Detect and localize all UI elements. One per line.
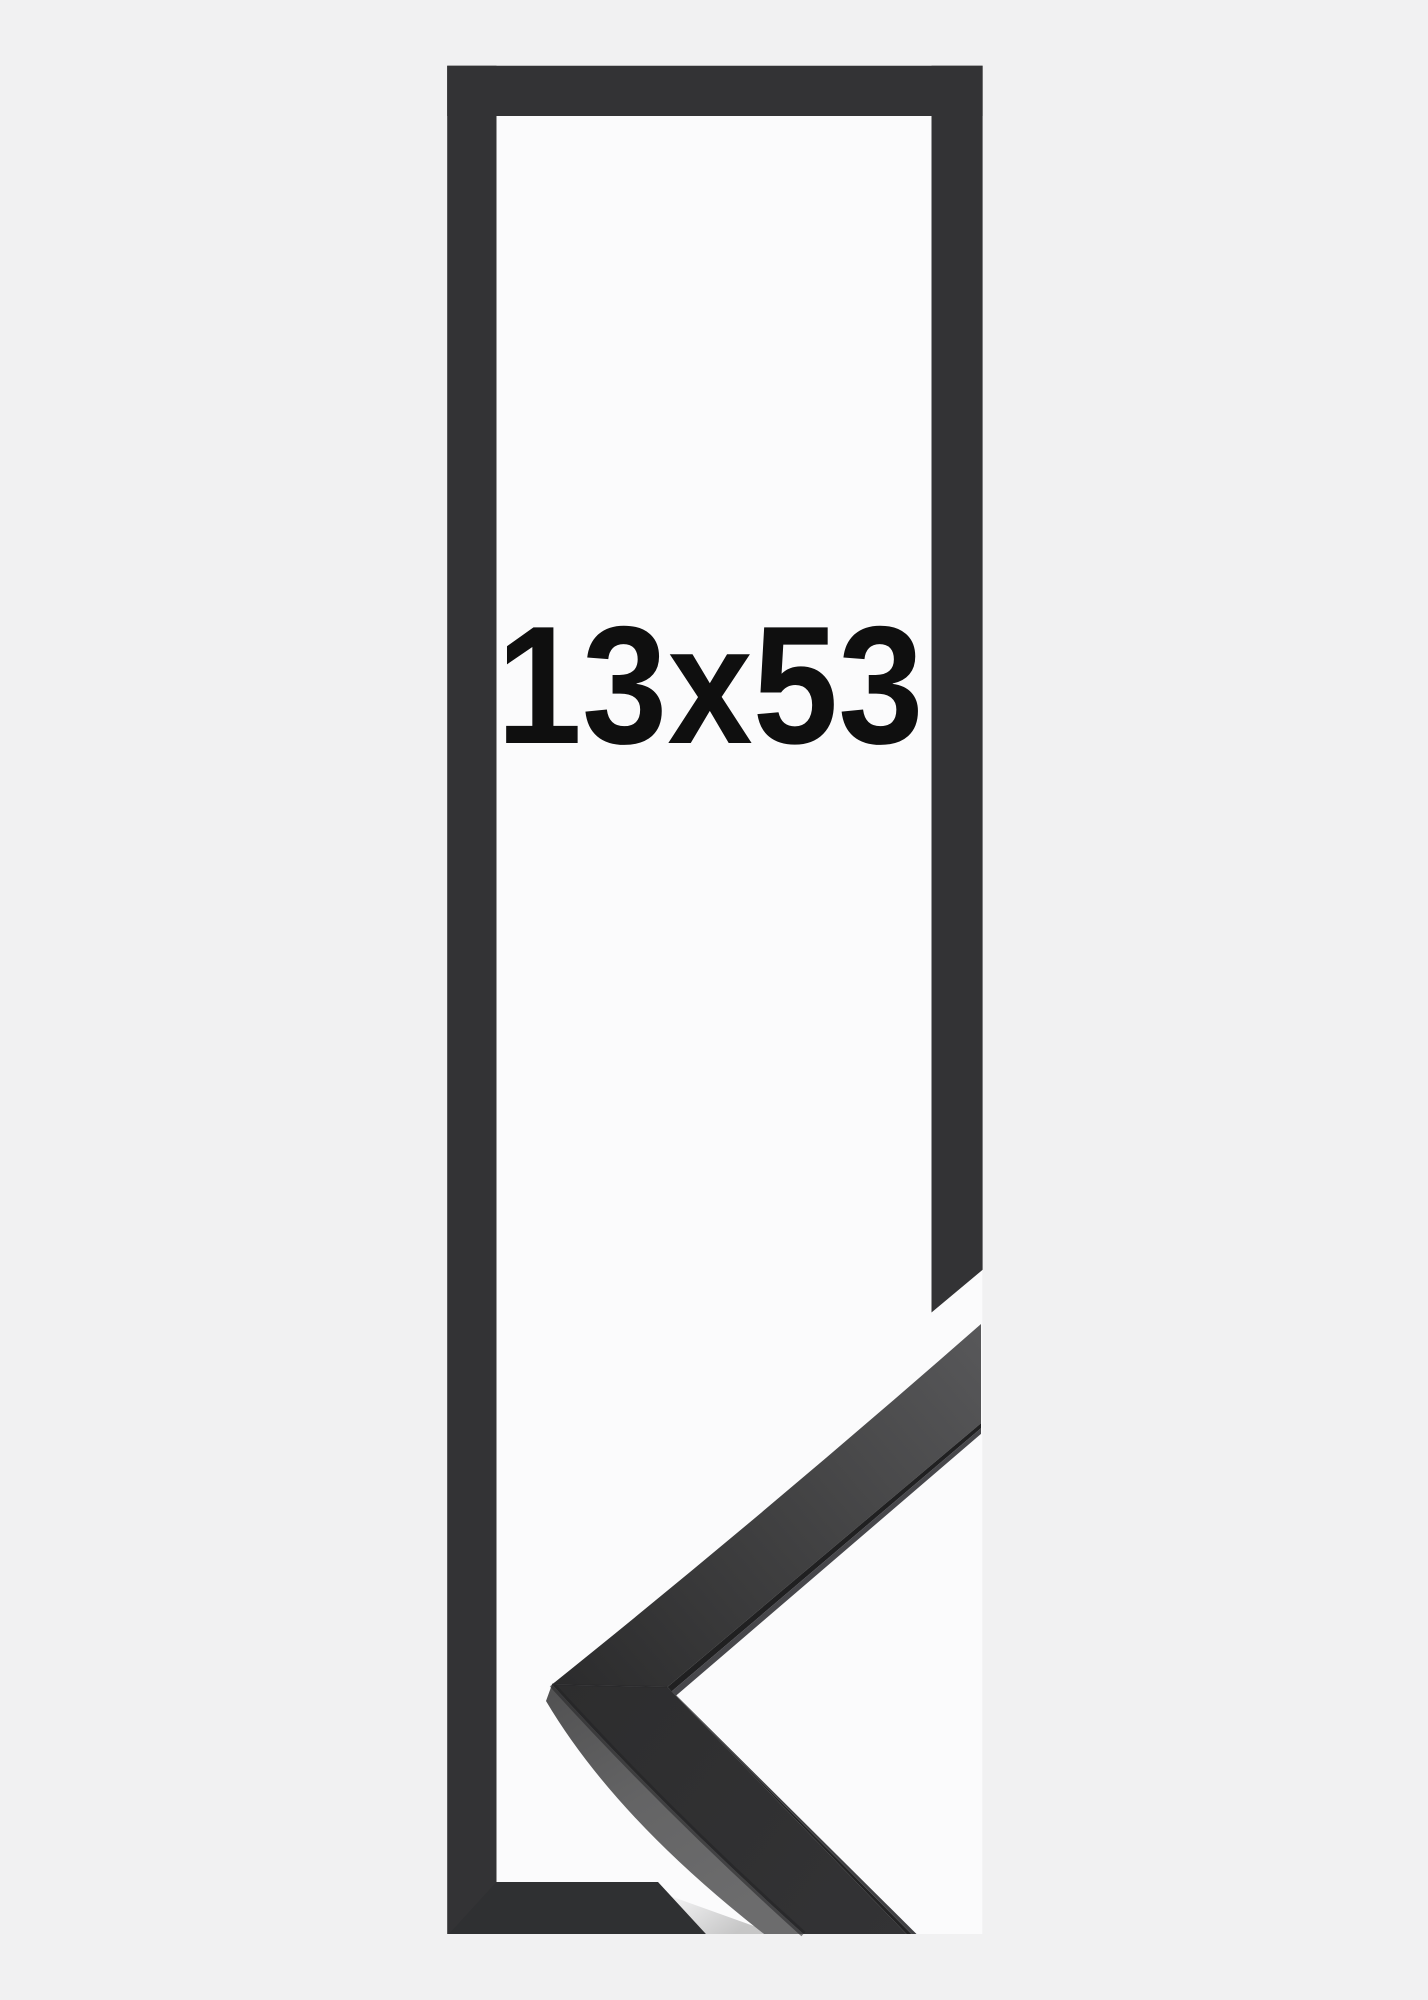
svg-text:13x53: 13x53 — [497, 591, 924, 779]
